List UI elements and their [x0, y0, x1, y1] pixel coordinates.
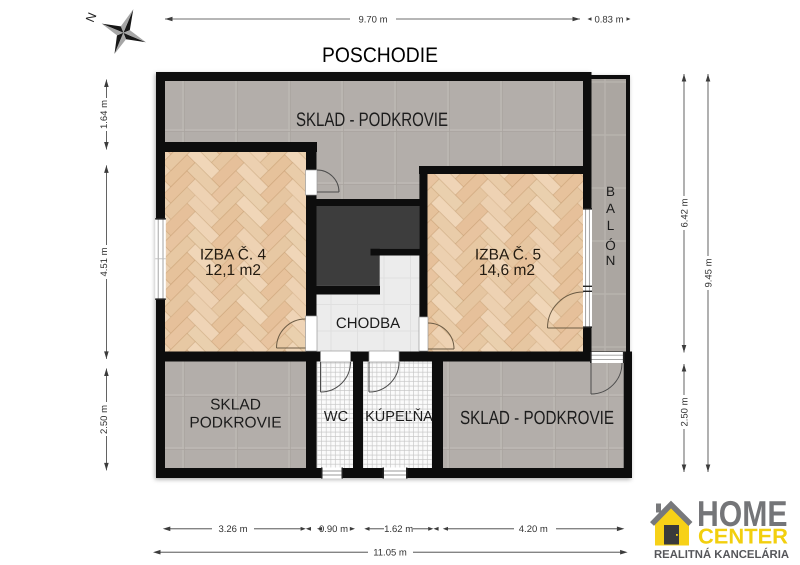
svg-text:N: N	[83, 11, 99, 25]
svg-text:PODKROVIE: PODKROVIE	[189, 415, 281, 432]
svg-text:3.26 m: 3.26 m	[218, 524, 247, 535]
svg-text:SKLAD - PODKROVIE: SKLAD - PODKROVIE	[296, 109, 448, 131]
svg-text:CHODBA: CHODBA	[336, 315, 400, 332]
svg-text:4.20 m: 4.20 m	[519, 524, 548, 535]
svg-text:A: A	[606, 201, 615, 216]
svg-text:SKLAD - PODKROVIE: SKLAD - PODKROVIE	[460, 408, 614, 429]
svg-text:SKLAD: SKLAD	[210, 397, 261, 414]
svg-text:6.42 m: 6.42 m	[680, 198, 691, 227]
svg-text:CENTER: CENTER	[698, 525, 788, 549]
svg-text:REALITNÁ KANCELÁRIA: REALITNÁ KANCELÁRIA	[654, 547, 789, 561]
svg-text:2.50 m: 2.50 m	[680, 397, 691, 426]
svg-text:4.51 m: 4.51 m	[99, 247, 110, 276]
svg-text:L: L	[607, 218, 615, 233]
svg-text:9.45 m: 9.45 m	[704, 258, 715, 287]
svg-text:IZBA Č. 4: IZBA Č. 4	[200, 246, 267, 264]
svg-text:1.62 m: 1.62 m	[384, 524, 413, 535]
svg-text:KÚPEĽŇA: KÚPEĽŇA	[365, 408, 433, 425]
svg-text:9.70 m: 9.70 m	[358, 15, 387, 26]
svg-text:B: B	[606, 184, 615, 199]
svg-text:Ó: Ó	[605, 238, 616, 253]
svg-text:IZBA Č. 5: IZBA Č. 5	[475, 246, 541, 264]
svg-text:WC: WC	[324, 409, 348, 425]
svg-text:11.05 m: 11.05 m	[373, 548, 407, 559]
svg-text:0.90 m: 0.90 m	[319, 524, 348, 535]
svg-text:14,6 m2: 14,6 m2	[479, 262, 535, 279]
svg-text:N: N	[606, 253, 616, 268]
svg-text:0.83 m: 0.83 m	[594, 15, 623, 26]
svg-text:12,1 m2: 12,1 m2	[205, 262, 261, 279]
svg-text:POSCHODIE: POSCHODIE	[322, 44, 438, 67]
svg-text:2.50 m: 2.50 m	[99, 405, 110, 434]
svg-text:1.64 m: 1.64 m	[99, 100, 110, 129]
